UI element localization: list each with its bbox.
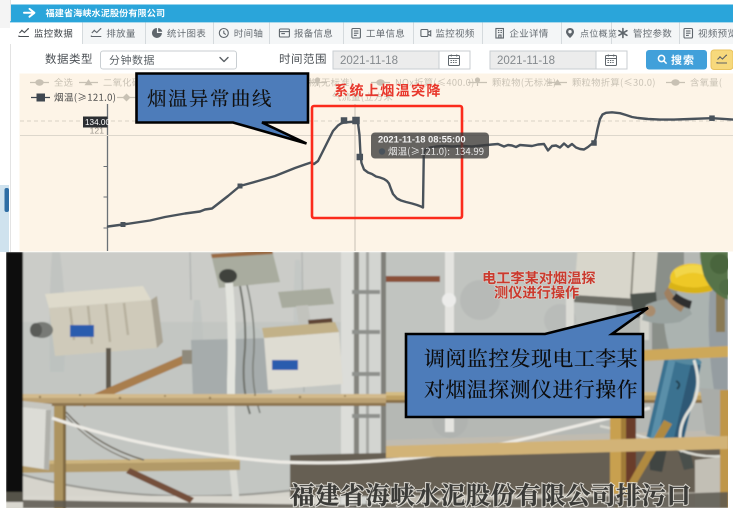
svg-text:2021-11-18: 2021-11-18	[340, 55, 398, 67]
svg-text:121: 121	[90, 126, 105, 136]
svg-text:2021-11-18: 2021-11-18	[497, 55, 555, 67]
svg-text:2021-11-18 08:55:00: 2021-11-18 08:55:00	[378, 134, 466, 145]
